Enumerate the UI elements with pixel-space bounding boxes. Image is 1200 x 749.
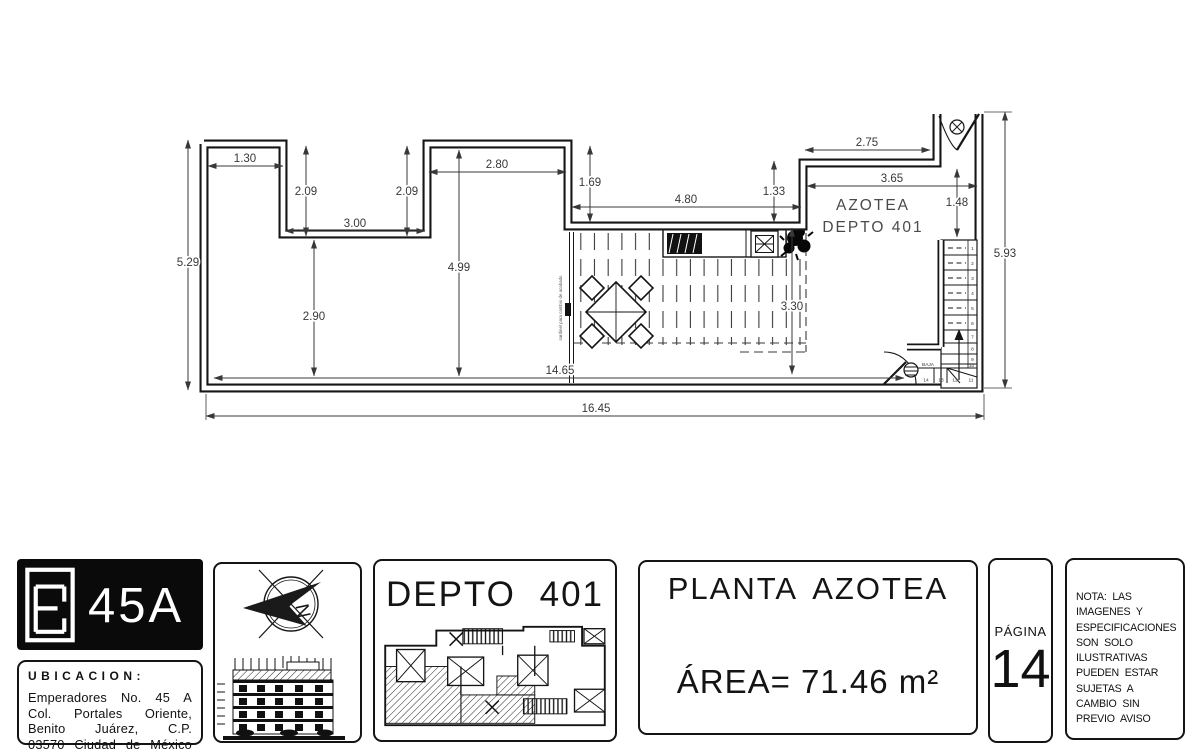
nota-line: PREVIO AVISO bbox=[1076, 712, 1175, 727]
e-logo-icon bbox=[24, 566, 76, 644]
roof-access-door bbox=[939, 114, 979, 150]
svg-text:1: 1 bbox=[971, 246, 974, 252]
svg-text:3.65: 3.65 bbox=[881, 173, 903, 185]
stove-icon bbox=[751, 231, 778, 257]
address-line: Emperadores No. 45 A bbox=[28, 690, 192, 706]
svg-text:11: 11 bbox=[969, 378, 974, 384]
svg-text:4.80: 4.80 bbox=[675, 194, 697, 206]
svg-text:9: 9 bbox=[971, 357, 974, 363]
svg-text:2.80: 2.80 bbox=[486, 159, 508, 171]
ubicacion-cell: UBICACION: Emperadores No. 45 A Col. Por… bbox=[17, 660, 203, 745]
nota-line: PUEDEN ESTAR bbox=[1076, 666, 1175, 681]
unit-plan-thumbnail bbox=[381, 623, 609, 729]
svg-text:2.09: 2.09 bbox=[295, 186, 317, 198]
svg-text:N: N bbox=[290, 602, 313, 620]
svg-text:5.93: 5.93 bbox=[994, 248, 1016, 260]
svg-text:1.48: 1.48 bbox=[946, 197, 968, 209]
deck-curb: sardinel para cambio de acabado bbox=[558, 232, 574, 383]
svg-text:12: 12 bbox=[952, 378, 958, 384]
staircase: 1 2 3 4 5 6 7 8 9 10 11 12 13 14 BAJA bbox=[907, 240, 977, 388]
svg-text:1.33: 1.33 bbox=[763, 186, 785, 198]
svg-text:14: 14 bbox=[923, 378, 929, 384]
nota-line: ILUSTRATIVAS bbox=[1076, 651, 1175, 666]
svg-text:14.65: 14.65 bbox=[546, 365, 575, 377]
svg-text:1.69: 1.69 bbox=[579, 177, 601, 189]
nota-line: IMAGENES Y bbox=[1076, 605, 1175, 620]
page-number: 14 bbox=[990, 641, 1051, 697]
north-compass-icon: N bbox=[243, 570, 323, 638]
svg-text:1.30: 1.30 bbox=[234, 153, 256, 165]
svg-text:3.00: 3.00 bbox=[344, 218, 366, 230]
ubicacion-label: UBICACION: bbox=[28, 669, 192, 683]
svg-text:13: 13 bbox=[938, 378, 944, 384]
compass-elevation-cell: N bbox=[213, 562, 362, 743]
room-label: AZOTEA DEPTO 401 bbox=[822, 197, 923, 236]
svg-text:8: 8 bbox=[971, 347, 974, 353]
svg-text:4.99: 4.99 bbox=[448, 262, 470, 274]
svg-text:7: 7 bbox=[971, 335, 974, 341]
svg-text:10: 10 bbox=[969, 363, 975, 369]
address-line: 03570 Ciudad de México bbox=[28, 737, 192, 749]
svg-text:3: 3 bbox=[971, 276, 974, 282]
stair-baja-label: BAJA bbox=[922, 362, 935, 368]
address-line: Col. Portales Oriente, bbox=[28, 706, 192, 722]
nota-line: SON SOLO bbox=[1076, 636, 1175, 651]
svg-text:5.29: 5.29 bbox=[177, 257, 199, 269]
nota-line: ESPECIFICACIONES bbox=[1076, 621, 1175, 636]
compass-and-elevation: N bbox=[215, 564, 360, 741]
deck-note: sardinel para cambio de acabado bbox=[558, 275, 563, 340]
area-value: ÁREA= 71.46 m² bbox=[640, 663, 976, 701]
stair-door bbox=[884, 352, 918, 384]
svg-text:AZOTEA: AZOTEA bbox=[836, 197, 910, 214]
svg-text:2: 2 bbox=[971, 261, 974, 267]
drawing-sheet: sardinel para cambio de acabado bbox=[0, 0, 1200, 749]
page-cell: PÁGINA 14 bbox=[988, 558, 1053, 743]
unit-cell: DEPTO 401 bbox=[373, 559, 617, 742]
page-label: PÁGINA bbox=[990, 624, 1051, 639]
logo-text: 45A bbox=[88, 578, 184, 634]
nota-line: NOTA: LAS bbox=[1076, 590, 1175, 605]
logo-cell: 45A bbox=[17, 559, 203, 650]
svg-text:3.30: 3.30 bbox=[781, 301, 803, 313]
dining-set bbox=[580, 276, 653, 348]
sheet-cell: PLANTA AZOTEA ÁREA= 71.46 m² bbox=[638, 560, 978, 735]
address: Emperadores No. 45 A Col. Portales Orien… bbox=[28, 690, 192, 749]
address-line: Benito Juárez, C.P. bbox=[28, 721, 192, 737]
grill-icon bbox=[667, 233, 702, 254]
svg-text:2.09: 2.09 bbox=[396, 186, 418, 198]
svg-text:6: 6 bbox=[971, 321, 974, 327]
svg-text:4: 4 bbox=[971, 291, 974, 297]
svg-text:16.45: 16.45 bbox=[582, 403, 611, 415]
nota-cell: NOTA: LAS IMAGENES Y ESPECIFICACIONES SO… bbox=[1065, 558, 1185, 740]
svg-text:5: 5 bbox=[971, 306, 974, 312]
nota-line: CAMBIO SIN bbox=[1076, 697, 1175, 712]
svg-text:2.90: 2.90 bbox=[303, 311, 325, 323]
plan-name: PLANTA AZOTEA bbox=[640, 571, 976, 607]
svg-text:DEPTO 401: DEPTO 401 bbox=[822, 219, 923, 236]
building-elevation-thumbnail bbox=[217, 656, 345, 740]
svg-text:2.75: 2.75 bbox=[856, 137, 878, 149]
nota-line: SUJETAS A bbox=[1076, 682, 1175, 697]
unit-title: DEPTO 401 bbox=[375, 575, 615, 615]
roof-plan-drawing: sardinel para cambio de acabado bbox=[0, 0, 1200, 555]
